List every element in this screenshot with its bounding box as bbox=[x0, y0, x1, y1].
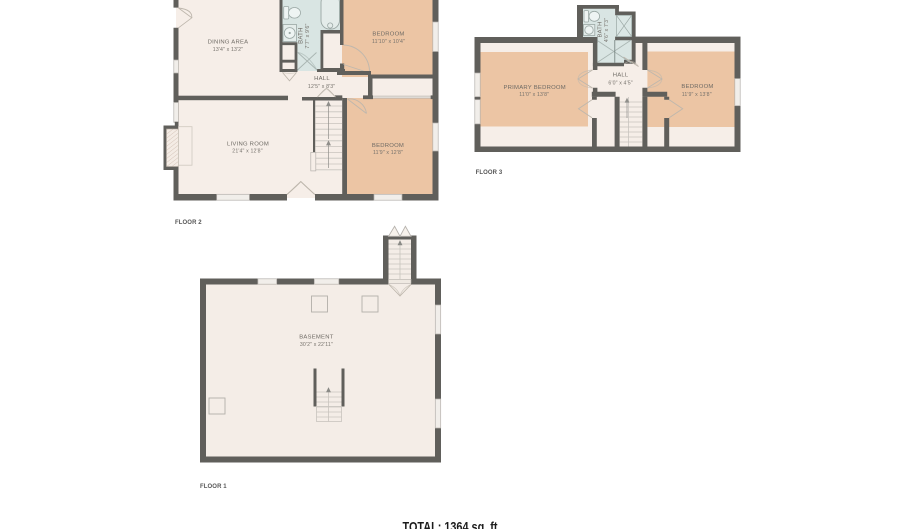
svg-text:BASEMENT: BASEMENT bbox=[299, 335, 334, 341]
svg-text:BATH: BATH bbox=[299, 27, 305, 44]
svg-text:BATH: BATH bbox=[598, 21, 604, 37]
svg-text:11'9" x 12'8": 11'9" x 12'8" bbox=[373, 150, 403, 156]
svg-text:4'6" x 7'3": 4'6" x 7'3" bbox=[604, 18, 610, 42]
svg-text:BEDROOM: BEDROOM bbox=[372, 32, 404, 38]
svg-text:11'0" x 13'8": 11'0" x 13'8" bbox=[519, 92, 549, 98]
svg-text:11'9" x 13'8": 11'9" x 13'8" bbox=[682, 92, 712, 98]
svg-text:DINING AREA: DINING AREA bbox=[208, 40, 249, 46]
svg-text:21'4" x 12'8": 21'4" x 12'8" bbox=[232, 149, 262, 155]
svg-text:TOTAL: 1364 sq. ft: TOTAL: 1364 sq. ft bbox=[403, 519, 498, 529]
svg-text:HALL: HALL bbox=[314, 76, 330, 82]
svg-text:6'0" x 4'5": 6'0" x 4'5" bbox=[608, 80, 632, 86]
svg-text:FLOOR 1: FLOOR 1 bbox=[200, 484, 227, 490]
svg-text:HALL: HALL bbox=[613, 73, 629, 79]
svg-text:FLOOR 2: FLOOR 2 bbox=[175, 220, 202, 226]
svg-text:BEDROOM: BEDROOM bbox=[681, 84, 713, 90]
svg-text:LIVING ROOM: LIVING ROOM bbox=[227, 141, 269, 147]
svg-text:FLOOR 3: FLOOR 3 bbox=[476, 170, 503, 176]
svg-text:12'5" x 8'3": 12'5" x 8'3" bbox=[308, 84, 335, 90]
svg-text:13'4" x 13'2": 13'4" x 13'2" bbox=[213, 47, 243, 53]
svg-text:7'7" x 9'6": 7'7" x 9'6" bbox=[305, 23, 311, 48]
svg-text:30'2" x 22'11": 30'2" x 22'11" bbox=[300, 342, 333, 348]
svg-text:BEDROOM: BEDROOM bbox=[372, 143, 404, 149]
svg-text:PRIMARY BEDROOM: PRIMARY BEDROOM bbox=[503, 85, 565, 91]
svg-text:11'10" x 10'4": 11'10" x 10'4" bbox=[372, 39, 405, 45]
